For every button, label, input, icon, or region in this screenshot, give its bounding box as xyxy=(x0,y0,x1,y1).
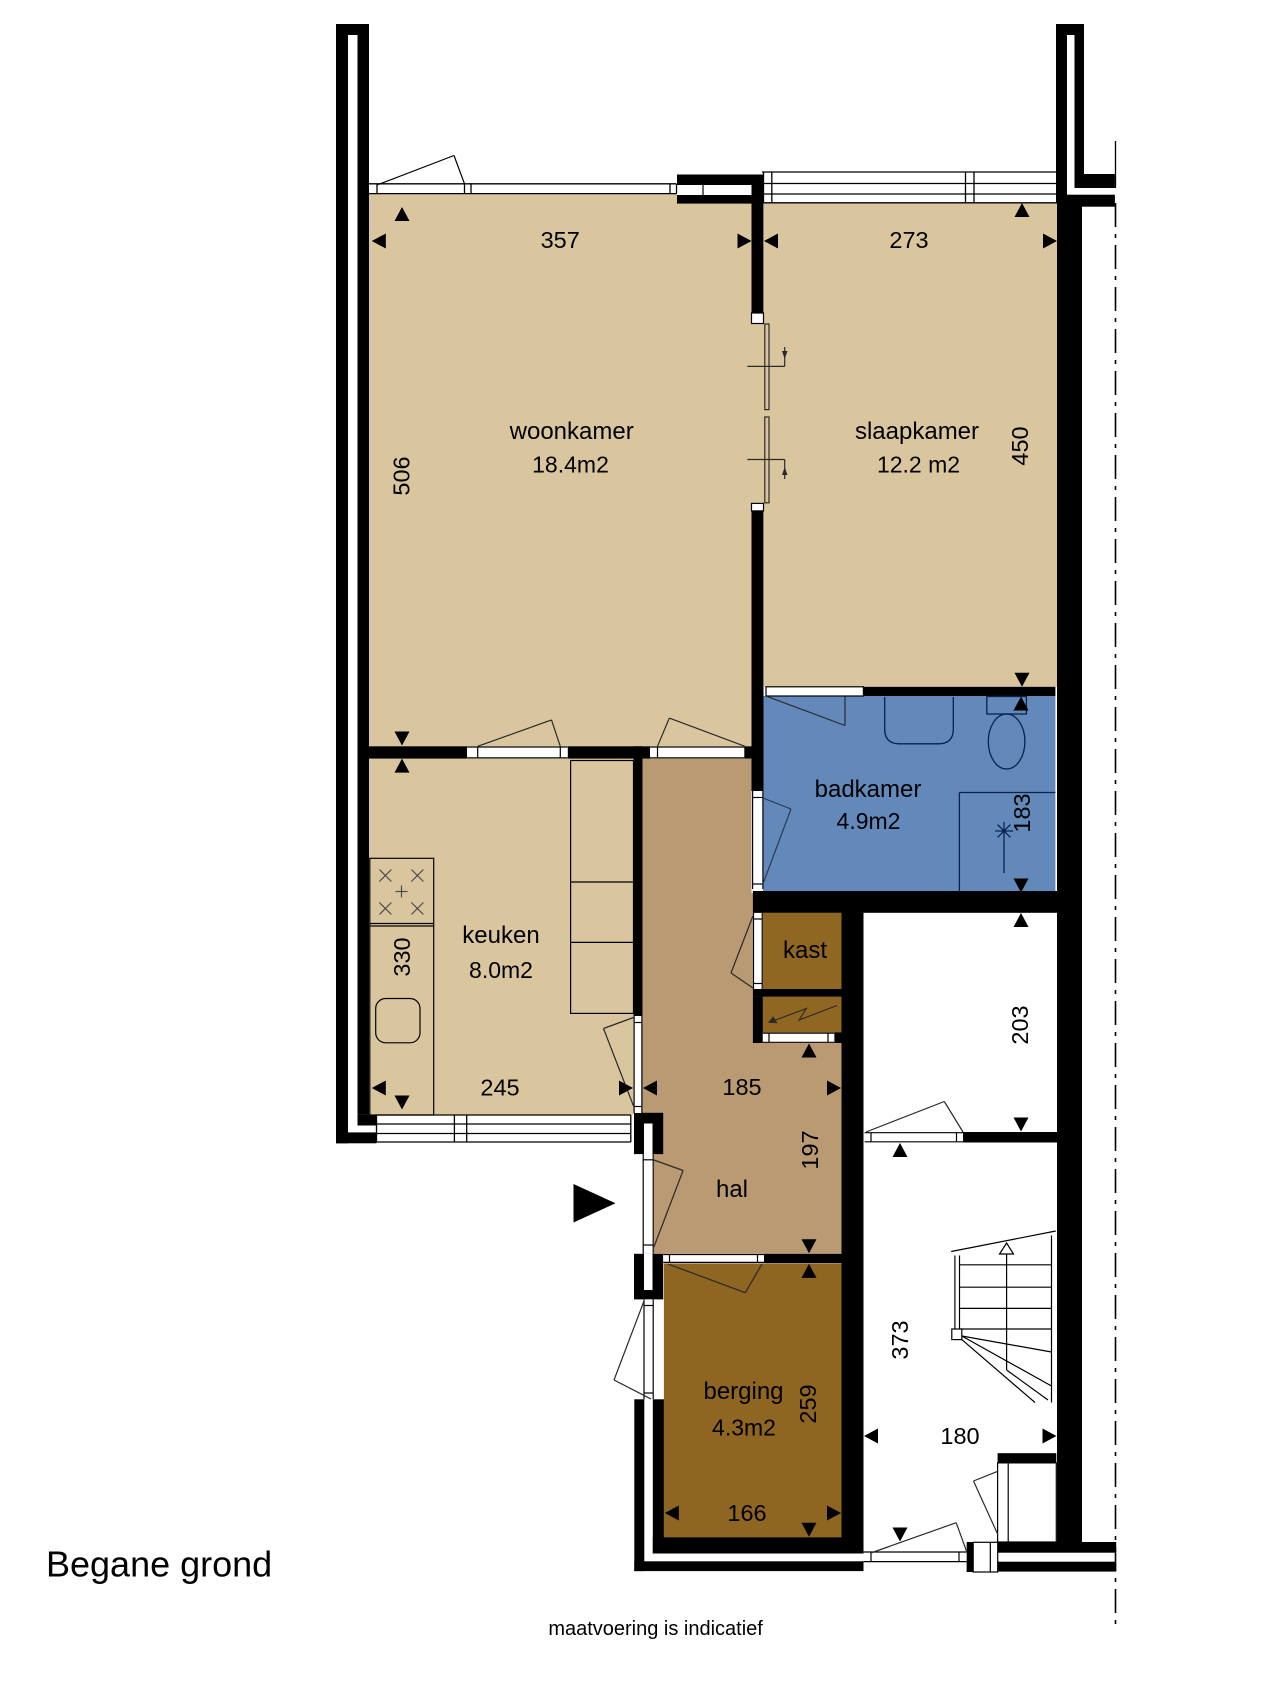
svg-text:18.4m2: 18.4m2 xyxy=(532,452,609,478)
svg-text:kast: kast xyxy=(783,937,827,964)
svg-text:185: 185 xyxy=(722,1074,761,1100)
svg-text:12.2 m2: 12.2 m2 xyxy=(877,452,960,478)
svg-text:357: 357 xyxy=(541,227,580,253)
svg-text:woonkamer: woonkamer xyxy=(509,418,634,445)
svg-text:8.0m2: 8.0m2 xyxy=(469,957,533,983)
svg-text:166: 166 xyxy=(727,1500,766,1526)
svg-text:450: 450 xyxy=(1007,426,1033,465)
svg-text:373: 373 xyxy=(887,1320,913,1359)
svg-text:273: 273 xyxy=(889,227,928,253)
svg-text:180: 180 xyxy=(940,1423,979,1449)
svg-text:506: 506 xyxy=(389,456,415,495)
svg-text:maatvoering is indicatief: maatvoering is indicatief xyxy=(548,1618,763,1640)
svg-text:203: 203 xyxy=(1007,1005,1033,1044)
svg-text:berging: berging xyxy=(703,1378,783,1405)
svg-text:183: 183 xyxy=(1009,793,1035,832)
svg-text:4.3m2: 4.3m2 xyxy=(712,1415,776,1441)
svg-text:330: 330 xyxy=(389,937,415,976)
svg-text:4.9m2: 4.9m2 xyxy=(837,808,901,834)
svg-text:Begane grond: Begane grond xyxy=(46,1544,272,1585)
svg-text:keuken: keuken xyxy=(462,922,539,949)
svg-text:slaapkamer: slaapkamer xyxy=(855,418,979,445)
svg-text:259: 259 xyxy=(795,1384,821,1423)
svg-text:hal: hal xyxy=(716,1176,748,1203)
svg-text:badkamer: badkamer xyxy=(815,776,922,803)
svg-text:197: 197 xyxy=(797,1130,823,1169)
svg-text:245: 245 xyxy=(480,1075,519,1101)
